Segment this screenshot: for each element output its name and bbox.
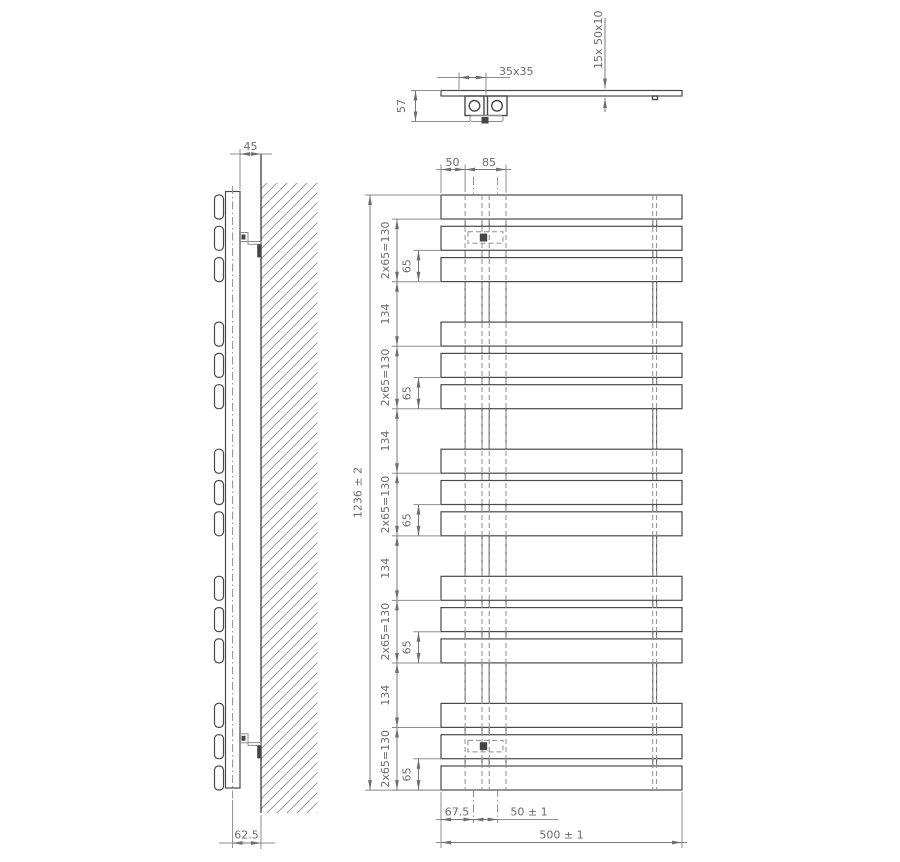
dim-edge-to-tube: 50 <box>446 156 460 169</box>
connection-port <box>469 101 480 112</box>
top-view: 57 35x35 15x 50x10 <box>395 10 682 123</box>
bar <box>215 735 224 759</box>
bar <box>215 385 224 409</box>
dim-bar-pitch: 65 <box>401 513 414 527</box>
bar <box>441 195 682 219</box>
dim-group-gap: 134 <box>379 558 392 579</box>
bar <box>441 766 682 790</box>
dim-bar-pitch: 65 <box>401 386 414 400</box>
drawing-sheet: 57 35x35 15x 50x10 <box>0 0 900 862</box>
collector-tubes-top <box>465 96 507 116</box>
dim-group-height: 2x65=130 <box>379 349 392 407</box>
bar <box>441 353 682 377</box>
bar <box>441 512 682 536</box>
dim-total-height: 1236 ± 2 <box>352 467 365 518</box>
bar <box>441 576 682 600</box>
bar <box>215 449 224 473</box>
dim-group-gap: 134 <box>379 304 392 325</box>
dim-axis-spacing: 50 ± 1 <box>510 806 547 819</box>
bar <box>215 576 224 600</box>
bar <box>441 258 682 282</box>
dim-bar-pitch: 65 <box>401 640 414 654</box>
bar <box>441 449 682 473</box>
dim-edge-to-axis: 67.5 <box>445 806 470 819</box>
bar <box>215 639 224 663</box>
bar <box>441 385 682 409</box>
bar <box>441 322 682 346</box>
bar <box>441 703 682 727</box>
dim-group-gap: 134 <box>379 431 392 452</box>
dim-total-width: 500 ± 1 <box>539 829 583 842</box>
technical-drawing: 57 35x35 15x 50x10 <box>0 0 900 862</box>
dim-axis-to-wall: 62.5 <box>234 829 259 842</box>
bracket-screw <box>482 117 489 124</box>
dim-depth: 57 <box>395 99 408 113</box>
front-view: 50 85 1236 ± 2 <box>352 156 688 848</box>
bar <box>441 481 682 505</box>
bar <box>215 322 224 346</box>
bar <box>215 195 224 219</box>
dim-tube-profile: 35x35 <box>499 65 534 78</box>
dim-group-height: 2x65=130 <box>379 222 392 280</box>
dim-bar-pitch: 65 <box>401 259 414 273</box>
wall-bracket-bottom <box>240 734 262 759</box>
dim-group-height: 2x65=130 <box>379 603 392 661</box>
bar <box>215 226 224 250</box>
dim-group-gap: 134 <box>379 685 392 706</box>
side-view: 45 62.5 <box>215 140 318 849</box>
bar <box>215 512 224 536</box>
bar <box>215 353 224 377</box>
dim-group-height: 2x65=130 <box>379 730 392 788</box>
bar <box>215 703 224 727</box>
dim-bars-spec: 15x 50x10 <box>592 10 605 69</box>
bar <box>215 481 224 505</box>
wall-bracket-top <box>240 233 262 258</box>
wall-hatch <box>262 183 318 813</box>
bar <box>215 258 224 282</box>
bar <box>215 608 224 632</box>
support-strip-top <box>653 96 658 100</box>
bar <box>441 735 682 759</box>
bar <box>441 608 682 632</box>
flat-bar-top <box>441 91 682 97</box>
dim-group-height: 2x65=130 <box>379 476 392 534</box>
dim-tube-outer: 85 <box>482 156 496 169</box>
bar <box>441 639 682 663</box>
connection-port <box>492 101 503 112</box>
bar <box>215 766 224 790</box>
dim-bar-pitch: 65 <box>401 768 414 782</box>
chain-ext-lines <box>392 219 441 790</box>
bar <box>441 226 682 250</box>
dim-wall-clearance: 45 <box>244 140 258 153</box>
